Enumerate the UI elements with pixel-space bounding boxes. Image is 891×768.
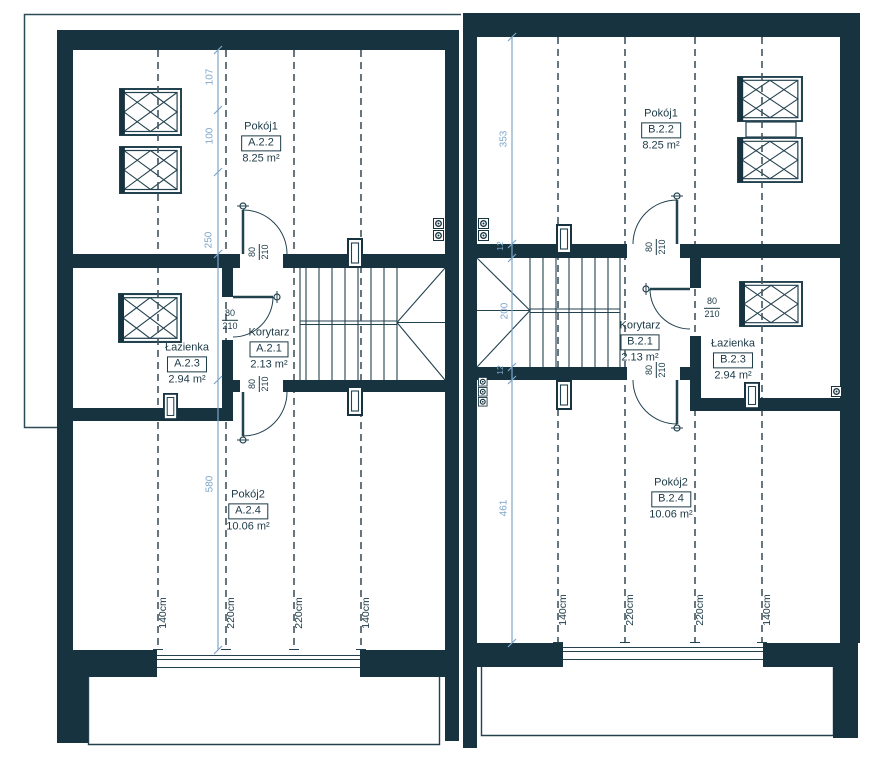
skylight-icons: [119, 77, 802, 342]
room-name: Korytarz: [249, 326, 290, 340]
height-line-label: 220cm: [624, 594, 636, 626]
height-line-label: 140cm: [557, 594, 569, 626]
height-line-label: 140cm: [360, 597, 372, 629]
skylight-icon: [119, 294, 181, 342]
room-name: Pokój1: [641, 107, 681, 121]
room-code: A.2.2: [241, 135, 281, 151]
skylight-icon: [738, 77, 802, 121]
door-size-label: 80 210: [644, 239, 668, 255]
vent-icon: [478, 377, 487, 386]
room-name: Pokój1: [241, 120, 281, 134]
wall-dimension: 580: [205, 476, 216, 493]
wall-window-icon: [348, 239, 362, 267]
door-size-label: 80 210: [644, 362, 668, 378]
room-label-a-pokoj1: Pokój1 A.2.2 8.25 m²: [241, 120, 281, 165]
room-code: B.2.2: [641, 122, 681, 138]
room-label-a-korytarz: Korytarz A.2.1 2.13 m²: [249, 326, 290, 371]
vent-icon: [434, 219, 444, 229]
door-size-label: 80 210: [247, 376, 271, 392]
wall-dimension: 353: [499, 131, 510, 148]
room-label-b-pokoj1: Pokój1 B.2.2 8.25 m²: [641, 107, 681, 152]
room-area: 2.94 m²: [711, 369, 755, 383]
balcony-a-outline: [89, 677, 440, 745]
height-line-label: 220cm: [225, 597, 237, 629]
door-size-label: 80 210: [222, 308, 238, 332]
height-line-label: 220cm: [293, 597, 305, 629]
room-name: Łazienka: [711, 337, 755, 351]
room-name: Pokój2: [649, 476, 692, 490]
height-line-label: 140cm: [761, 594, 773, 626]
skylight-icon: [120, 147, 181, 193]
room-label-b-pokoj2: Pokój2 B.2.4 10.06 m²: [649, 476, 692, 521]
vent-icon: [832, 387, 842, 397]
wall-window-icon: [348, 387, 362, 415]
skylight-icon: [120, 89, 181, 135]
room-area: 8.25 m²: [641, 139, 681, 153]
room-area: 8.25 m²: [241, 152, 281, 166]
wall-window-icon: [557, 381, 571, 409]
room-area: 10.06 m²: [226, 520, 269, 534]
room-code: A.2.1: [249, 341, 289, 357]
wall-window-icon: [164, 394, 177, 419]
skylight-icon: [740, 282, 802, 326]
room-code: A.2.3: [167, 356, 207, 372]
room-code: B.2.3: [713, 352, 753, 368]
window-b-sill: [556, 648, 770, 660]
room-area: 2.13 m²: [249, 358, 290, 372]
wall-dimension: 200: [500, 303, 511, 320]
balcony-b-outline: [482, 667, 834, 736]
doors: [233, 193, 690, 443]
room-code: B.2.4: [651, 491, 691, 507]
stairs-a: [300, 268, 445, 380]
wall-dimension: 12: [495, 241, 505, 250]
skylight-connector: [746, 122, 796, 137]
floor-plan: Pokój1 A.2.2 8.25 m² Korytarz A.2.1 2.13…: [0, 0, 891, 768]
door-size-label: 80 210: [704, 296, 720, 320]
height-line-label: 220cm: [694, 594, 706, 626]
vent-icon: [434, 231, 444, 241]
wall-window-icon: [557, 225, 571, 253]
plan-linework: [0, 0, 891, 768]
wall-dimension: 107: [205, 69, 216, 86]
room-area: 10.06 m²: [649, 508, 692, 522]
vent-icon: [479, 231, 489, 241]
room-area: 2.94 m²: [165, 373, 209, 387]
room-label-b-lazienka: Łazienka B.2.3 2.94 m²: [711, 337, 755, 382]
room-label-a-pokoj2: Pokój2 A.2.4 10.06 m²: [226, 488, 269, 533]
skylight-icon: [738, 138, 802, 182]
room-label-b-korytarz: Korytarz B.2.1 2.13 m²: [620, 319, 661, 364]
window-a-sill: [150, 656, 366, 668]
room-name: Korytarz: [620, 319, 661, 333]
height-line-label: 140cm: [157, 597, 169, 629]
room-label-a-lazienka: Łazienka A.2.3 2.94 m²: [165, 341, 209, 386]
room-name: Łazienka: [165, 341, 209, 355]
room-code: A.2.4: [228, 503, 268, 519]
wall-dimension: 461: [499, 500, 510, 517]
room-code: B.2.1: [620, 334, 660, 350]
vent-icon: [478, 387, 487, 396]
door-size-label: 80 210: [247, 244, 271, 260]
vent-icon: [479, 219, 489, 229]
wall-window-icon: [745, 383, 759, 408]
wall-dimension: 250: [204, 232, 215, 249]
dimension-line-b: [508, 33, 516, 647]
wall-dimension: 12: [495, 365, 505, 374]
room-name: Pokój2: [226, 488, 269, 502]
wall-dimension: 100: [205, 128, 216, 145]
vent-icon: [478, 397, 487, 406]
stairs-b: [477, 258, 620, 367]
